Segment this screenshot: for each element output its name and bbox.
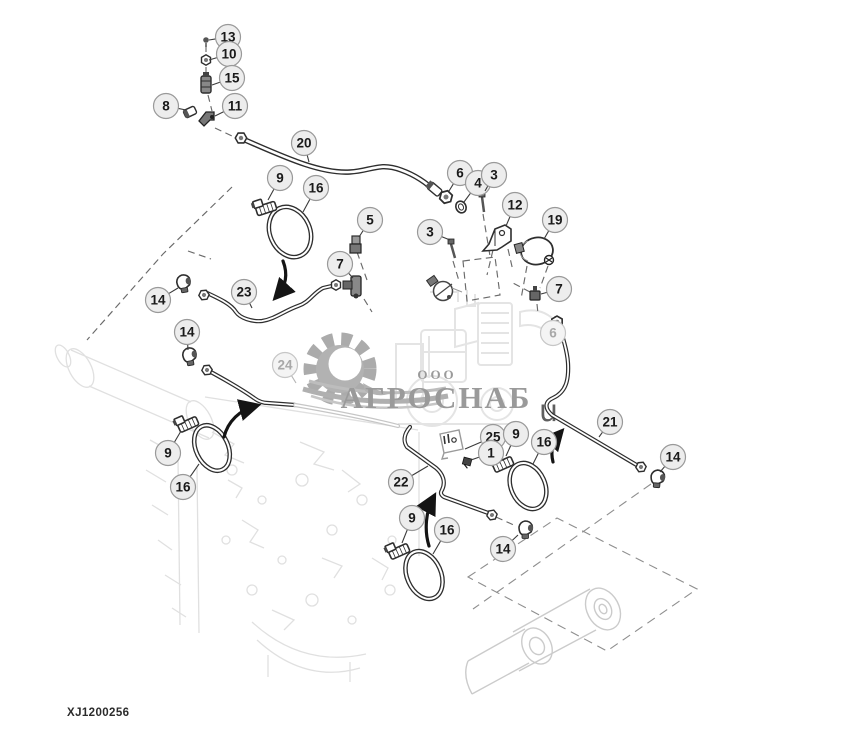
watermark-company-name: АГРОСНАБ	[341, 380, 532, 415]
callout-number: 9	[276, 171, 284, 186]
tube-23-right-nut	[332, 280, 341, 290]
callout-leader	[292, 376, 296, 383]
callout-leader	[533, 453, 538, 464]
callout-14: 14	[175, 320, 200, 351]
callout-leader	[464, 193, 471, 202]
callout-number: 12	[507, 198, 522, 213]
callout-leader	[268, 189, 274, 200]
drawing-code: XJ1200256	[67, 707, 129, 719]
elbow-fitting-14-top	[176, 274, 193, 294]
callout-leader	[541, 292, 547, 294]
callout-leader	[512, 535, 518, 540]
fitting-11	[199, 112, 214, 126]
callout-number: 10	[221, 47, 236, 62]
callout-9: 9	[504, 422, 529, 457]
callout-number: 6	[456, 166, 464, 181]
callout-14: 14	[146, 288, 179, 313]
callout-leader	[250, 303, 252, 308]
plug-8	[183, 106, 197, 118]
callout-leader	[169, 288, 178, 294]
bolt-13	[203, 37, 209, 47]
callout-9: 9	[268, 166, 293, 201]
callout-leader	[412, 466, 428, 476]
callout-number: 16	[175, 480, 191, 495]
callout-9: 9	[400, 506, 425, 544]
hose-20	[238, 137, 437, 193]
callout-number: 3	[426, 225, 434, 240]
callout-layer: 1310158112091656431219371423761424212591…	[146, 25, 686, 562]
callout-11: 11	[215, 94, 248, 119]
callout-leader	[307, 155, 309, 162]
tube-23-left-nut	[198, 288, 211, 301]
callout-number: 22	[393, 475, 408, 490]
callout-number: 19	[547, 213, 562, 228]
callout-number: 8	[162, 99, 170, 114]
tube-23	[205, 285, 336, 321]
callout-7: 7	[328, 252, 354, 279]
callout-22: 22	[389, 466, 429, 495]
callout-24: 24	[273, 353, 298, 384]
callout-number: 16	[308, 181, 324, 196]
callout-number: 23	[236, 285, 252, 300]
callout-leader	[449, 184, 453, 191]
callout-21: 21	[598, 410, 623, 438]
callout-number: 3	[490, 168, 498, 183]
callout-number: 20	[296, 136, 311, 151]
callout-leader	[471, 457, 479, 460]
callout-10: 10	[209, 42, 242, 67]
callout-14: 14	[491, 535, 519, 562]
tube-21-nut	[635, 460, 648, 473]
callout-number: 9	[408, 511, 416, 526]
callout-leader	[433, 541, 441, 554]
callout-9: 9	[156, 431, 182, 466]
callout-number: 7	[336, 257, 344, 272]
callout-leader	[599, 432, 603, 437]
valve-fitting	[427, 275, 462, 300]
callout-15: 15	[212, 66, 245, 91]
callout-5: 5	[358, 208, 383, 238]
callout-leader	[544, 231, 549, 239]
callout-16: 16	[433, 518, 460, 555]
bolt-3-lower	[448, 239, 455, 258]
tee-fitting-7	[343, 276, 361, 299]
callout-number: 16	[536, 435, 552, 450]
callout-leader	[209, 39, 216, 40]
callout-7: 7	[541, 277, 572, 302]
callout-number: 15	[224, 71, 240, 86]
elbow-fitting-14-left	[182, 347, 199, 367]
callout-number: 16	[439, 523, 455, 538]
callout-16: 16	[171, 464, 200, 500]
callout-leader	[212, 82, 220, 85]
callout-leader	[174, 431, 181, 442]
callout-number: 6	[549, 326, 557, 341]
callout-number: 7	[555, 282, 563, 297]
callout-number: 5	[366, 213, 374, 228]
fitting-5	[350, 236, 361, 253]
callout-16: 16	[303, 176, 329, 213]
callout-8: 8	[154, 94, 187, 119]
callout-23: 23	[232, 280, 257, 309]
callout-14: 14	[660, 445, 686, 473]
fitting-15	[201, 72, 211, 93]
bracket-25	[440, 430, 463, 459]
callout-number: 21	[602, 415, 618, 430]
construction-dashed-lines	[87, 45, 697, 651]
callout-leader	[215, 112, 224, 116]
callout-number: 14	[665, 450, 681, 465]
parts-diagram: ООО АГРОСНАБ u	[0, 0, 841, 731]
callout-number: 11	[228, 99, 243, 114]
callout-6: 6	[541, 321, 566, 346]
callout-12: 12	[503, 193, 528, 227]
callout-number: 9	[512, 427, 520, 442]
diagram-stage: ООО АГРОСНАБ u	[0, 0, 841, 731]
callout-number: 1	[487, 446, 495, 461]
callout-number: 4	[474, 176, 482, 191]
callout-leader	[359, 230, 363, 237]
callout-leader	[303, 199, 310, 212]
elbow-fitting-14-right	[650, 470, 666, 489]
callout-leader	[506, 216, 510, 226]
callout-leader	[402, 530, 407, 543]
callout-number: 14	[150, 293, 166, 308]
callout-number: 14	[179, 325, 195, 340]
accumulator-19	[514, 235, 555, 267]
bolt-1	[462, 457, 472, 469]
fitting-7-upper	[530, 286, 540, 300]
callout-20: 20	[292, 131, 317, 163]
washer-4	[454, 199, 468, 214]
callout-number: 14	[495, 542, 511, 557]
callout-leader	[178, 108, 186, 110]
tube-22-nut	[486, 509, 498, 522]
ring-16-left	[187, 419, 237, 476]
axle-outline-watermark	[466, 582, 628, 694]
callout-leader	[442, 237, 450, 240]
tube-22	[405, 427, 491, 514]
callout-19: 19	[543, 208, 568, 240]
callout-3: 3	[418, 220, 451, 245]
callout-number: 9	[164, 446, 172, 461]
callout-leader	[506, 445, 511, 456]
callout-number: 24	[277, 358, 293, 373]
